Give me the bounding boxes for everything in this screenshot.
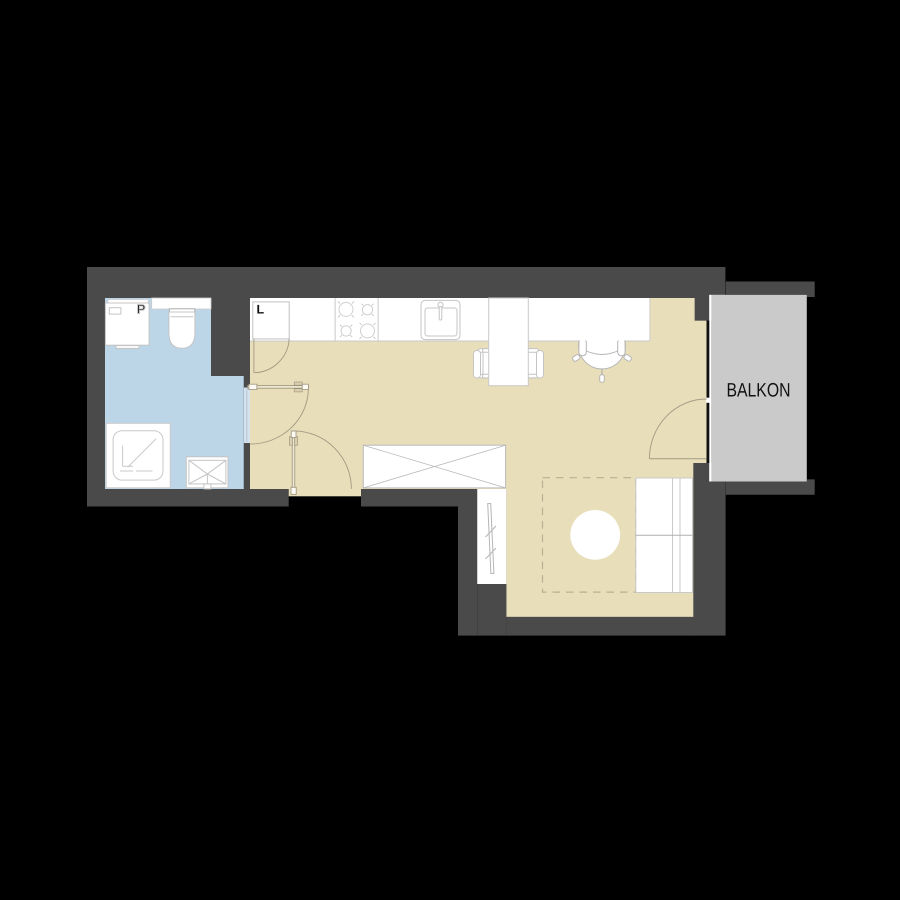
svg-text:L: L (257, 303, 265, 317)
svg-text:BALKON: BALKON (727, 380, 791, 402)
svg-text:P: P (137, 301, 146, 316)
